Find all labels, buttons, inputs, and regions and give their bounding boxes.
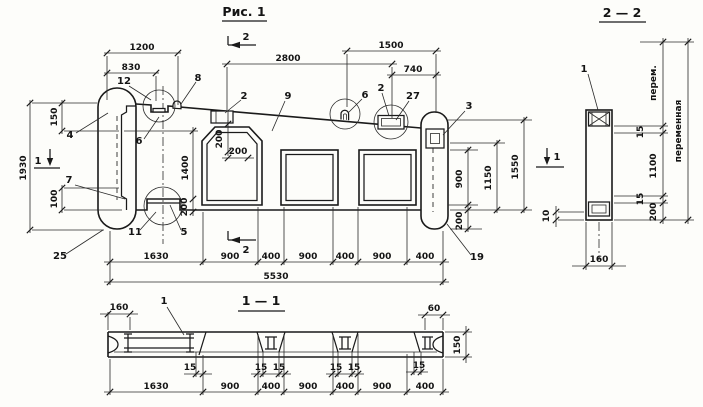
fixture-6-loop bbox=[341, 110, 349, 120]
dim-200-horiz: 200 bbox=[229, 147, 248, 157]
label-item-11: 11 bbox=[128, 227, 142, 238]
sec22-label-1: 1 bbox=[581, 64, 588, 75]
dim-150: 150 bbox=[50, 108, 60, 127]
label-item-19: 19 bbox=[470, 252, 484, 263]
section1-marker-left-arrow bbox=[47, 158, 53, 166]
fig-title: Рис. 1 bbox=[222, 4, 265, 19]
technical-drawing-sheet: Рис. 1 2 2 1 1 1200 830 2800 1500 740 19… bbox=[0, 0, 703, 407]
dim-740: 740 bbox=[404, 65, 423, 75]
dim-1200: 1200 bbox=[129, 43, 154, 53]
section-markers bbox=[34, 36, 564, 243]
dim-1550: 1550 bbox=[511, 154, 521, 179]
sec22-dim-15a: 15 bbox=[636, 126, 646, 139]
dim-total-5530: 5530 bbox=[263, 272, 288, 282]
sec11-dim-15c: 15 bbox=[273, 363, 286, 373]
sec11-dim-15d: 15 bbox=[330, 363, 343, 373]
sec11-channel bbox=[124, 338, 194, 348]
sec11-joint-slashes bbox=[199, 332, 420, 355]
sec11-dim-15b: 15 bbox=[255, 363, 268, 373]
left-end-block bbox=[98, 88, 136, 229]
sec11-title: 1 — 1 bbox=[242, 293, 281, 308]
sec22-dim-1100: 1100 bbox=[649, 153, 659, 178]
sec22-bottom-channel bbox=[589, 202, 610, 216]
section-1-1: 1 — 1 1 160 60 150 15 15 15 15 15 15 163… bbox=[100, 293, 472, 395]
dim-1930: 1930 bbox=[19, 155, 29, 180]
blueprint-svg: Рис. 1 2 2 1 1 1200 830 2800 1500 740 19… bbox=[0, 0, 703, 407]
dim-1150: 1150 bbox=[484, 165, 494, 190]
section2-marker-top-arrow bbox=[230, 42, 240, 48]
opening-2-outer bbox=[281, 150, 338, 205]
label-item-4: 4 bbox=[67, 130, 74, 141]
dim-1400: 1400 bbox=[181, 155, 191, 180]
sec11-label-1: 1 bbox=[161, 296, 168, 307]
sec22-dim-10: 10 bbox=[542, 210, 552, 223]
sec22-dim-perem: перем. bbox=[649, 65, 659, 101]
section-2-2: 2 — 2 1 перем. 15 1100 15 200 переменная… bbox=[542, 5, 694, 270]
sec22-dim-160: 160 bbox=[590, 255, 609, 265]
label-item-8: 8 bbox=[195, 73, 202, 84]
label-item-27: 27 bbox=[406, 91, 420, 102]
sec11-left-notch bbox=[108, 336, 118, 353]
sec22-label1-leader bbox=[588, 74, 598, 110]
sec11-dim-15e: 15 bbox=[348, 363, 361, 373]
marker-1-right: 1 bbox=[554, 152, 561, 163]
label-item-25: 25 bbox=[53, 251, 67, 262]
sec11-bottom-400b: 400 bbox=[336, 382, 355, 392]
sec11-bottom-900a: 900 bbox=[221, 382, 240, 392]
label-item-9: 9 bbox=[285, 91, 292, 102]
openings bbox=[202, 127, 416, 205]
dim-2800: 2800 bbox=[275, 54, 300, 64]
main-dim-lines bbox=[27, 48, 532, 285]
opening-3-inner bbox=[364, 155, 411, 201]
sec22-title: 2 — 2 bbox=[603, 5, 642, 20]
sec11-bar bbox=[108, 332, 443, 357]
sec11-right-notch bbox=[433, 336, 443, 353]
sec22-dim-200: 200 bbox=[649, 203, 659, 222]
dim-bottom-400c: 400 bbox=[416, 252, 435, 262]
sec11-bottom-400a: 400 bbox=[262, 382, 281, 392]
dim-bottom-900b: 900 bbox=[299, 252, 318, 262]
marker-2-top: 2 bbox=[243, 32, 250, 43]
sec11-label1-leader bbox=[167, 307, 184, 335]
sec22-dim-total: переменная bbox=[674, 99, 684, 162]
dim-bottom-1630: 1630 bbox=[143, 252, 168, 262]
dim-bottom-900a: 900 bbox=[221, 252, 240, 262]
dim-200-vert: 200 bbox=[215, 130, 225, 149]
dim-bottom-400a: 400 bbox=[262, 252, 281, 262]
label-item-12: 12 bbox=[117, 76, 131, 87]
label-item-2b: 2 bbox=[378, 83, 385, 94]
section2-marker-bottom-arrow bbox=[230, 237, 240, 243]
sec11-bottom-900b: 900 bbox=[299, 382, 318, 392]
sec11-dim-150: 150 bbox=[453, 336, 463, 355]
dimension-ticks bbox=[27, 48, 527, 285]
dim-100: 100 bbox=[50, 190, 60, 209]
sec11-bottom-900c: 900 bbox=[373, 382, 392, 392]
label-item-7: 7 bbox=[66, 175, 73, 186]
left-recess-profile bbox=[122, 106, 137, 210]
sec11-anchor-symbols bbox=[265, 337, 433, 349]
label-item-6b: 6 bbox=[362, 90, 369, 101]
opening-3-outer bbox=[359, 150, 416, 205]
marker-1-left: 1 bbox=[35, 156, 42, 167]
dim-bottom-900c: 900 bbox=[373, 252, 392, 262]
sec11-channel-ends bbox=[124, 334, 194, 352]
fixture-2a bbox=[211, 111, 233, 123]
fixture-3 bbox=[426, 129, 444, 148]
marker-2-bottom: 2 bbox=[243, 245, 250, 256]
main-view: Рис. 1 2 2 1 1 1200 830 2800 1500 740 19… bbox=[19, 4, 564, 285]
dim-900-right: 900 bbox=[455, 170, 465, 189]
sec11-dim-15a: 15 bbox=[184, 363, 197, 373]
label-item-3: 3 bbox=[466, 101, 473, 112]
section1-marker-right-arrow bbox=[544, 157, 550, 165]
label-item-6a: 6 bbox=[136, 136, 143, 147]
label-item-5: 5 bbox=[181, 227, 188, 238]
section2-marker-bottom-line bbox=[228, 231, 256, 240]
dim-bottom-400b: 400 bbox=[336, 252, 355, 262]
dimension-lines bbox=[30, 51, 524, 282]
dim-1500: 1500 bbox=[378, 41, 403, 51]
sec22-top-channel bbox=[589, 112, 610, 126]
sec11-dim-60: 60 bbox=[428, 304, 441, 314]
sec11-dim-15f: 15 bbox=[413, 361, 426, 371]
embedded-fixtures bbox=[173, 101, 444, 148]
sec11-bottom-1630: 1630 bbox=[143, 382, 168, 392]
sec11-dim-160: 160 bbox=[110, 303, 129, 313]
dim-830: 830 bbox=[122, 63, 141, 73]
top-notch-plate bbox=[153, 109, 165, 113]
sec22-ticks bbox=[553, 39, 691, 269]
dim-200-bottom: 200 bbox=[180, 198, 190, 217]
sec22-dim-15b: 15 bbox=[636, 193, 646, 206]
extension-lines bbox=[32, 54, 532, 285]
sec11-bottom-400c: 400 bbox=[416, 382, 435, 392]
dim-200-right: 200 bbox=[455, 212, 465, 231]
opening-2-inner bbox=[286, 155, 333, 201]
label-item-2a: 2 bbox=[241, 91, 248, 102]
